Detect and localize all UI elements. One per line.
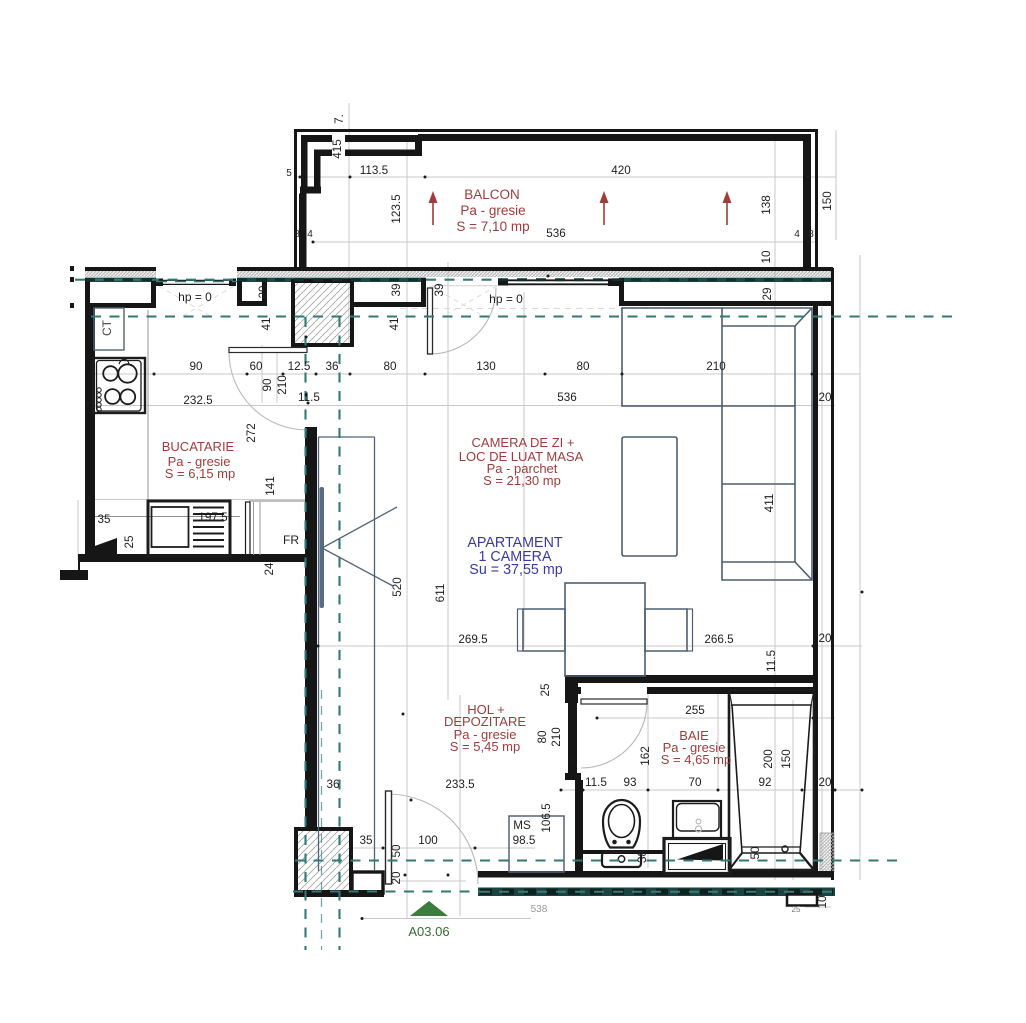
svg-text:123.5: 123.5	[390, 194, 403, 224]
svg-text:MS: MS	[513, 819, 531, 832]
svg-text:611: 611	[434, 584, 447, 603]
svg-text:4: 4	[307, 229, 313, 240]
svg-text:538: 538	[531, 904, 548, 915]
svg-text:36: 36	[326, 778, 339, 791]
svg-text:415: 415	[331, 139, 344, 159]
svg-text:25: 25	[539, 683, 552, 697]
svg-text:520: 520	[391, 577, 404, 597]
svg-text:24: 24	[263, 562, 276, 576]
svg-text:39: 39	[433, 283, 446, 296]
svg-text:100: 100	[418, 834, 438, 847]
svg-text:20: 20	[818, 632, 832, 645]
svg-text:411: 411	[763, 494, 776, 513]
svg-text:150: 150	[780, 749, 793, 769]
svg-text:FR: FR	[283, 533, 299, 547]
svg-text:hp = 0: hp = 0	[489, 292, 523, 306]
svg-text:20: 20	[818, 391, 832, 404]
svg-text:39: 39	[390, 283, 403, 296]
svg-text:29: 29	[761, 287, 774, 300]
svg-text:41: 41	[260, 317, 273, 330]
svg-text:4: 4	[794, 229, 800, 240]
svg-text:210: 210	[706, 360, 726, 373]
svg-text:141: 141	[264, 476, 277, 496]
svg-text:138: 138	[760, 195, 773, 215]
svg-text:269.5: 269.5	[458, 633, 488, 646]
svg-text:197.5: 197.5	[198, 511, 228, 524]
svg-text:7.: 7.	[333, 114, 346, 124]
svg-text:hp = 0: hp = 0	[178, 290, 212, 304]
svg-text:S = 7,10 mp: S = 7,10 mp	[456, 219, 529, 234]
svg-text:90: 90	[261, 378, 274, 392]
svg-text:536: 536	[546, 227, 566, 240]
svg-text:210: 210	[550, 727, 563, 747]
svg-text:29: 29	[257, 285, 270, 298]
svg-text:200: 200	[762, 749, 775, 769]
svg-text:162: 162	[639, 746, 652, 766]
svg-text:80: 80	[576, 360, 590, 373]
svg-text:11.5: 11.5	[765, 650, 778, 672]
svg-text:S = 6,15 mp: S = 6,15 mp	[165, 466, 235, 481]
svg-text:130: 130	[476, 360, 496, 373]
svg-text:A03.06: A03.06	[408, 924, 449, 939]
svg-text:10: 10	[816, 895, 829, 909]
svg-text:8: 8	[294, 229, 300, 240]
svg-text:232.5: 232.5	[183, 394, 213, 407]
svg-text:CT: CT	[100, 319, 114, 336]
svg-text:11.5: 11.5	[298, 391, 320, 404]
svg-text:98.5: 98.5	[513, 834, 536, 847]
svg-text:420: 420	[611, 164, 631, 177]
svg-text:BUCATARIE: BUCATARIE	[162, 439, 235, 454]
svg-text:255: 255	[685, 704, 705, 717]
svg-text:536: 536	[557, 391, 577, 404]
svg-text:Pa - gresie: Pa - gresie	[460, 203, 525, 218]
svg-text:70: 70	[688, 776, 702, 789]
svg-text:92: 92	[758, 776, 771, 789]
svg-text:233.5: 233.5	[445, 778, 475, 791]
svg-text:Su = 37,55 mp: Su = 37,55 mp	[469, 562, 562, 578]
svg-text:266.5: 266.5	[704, 633, 734, 646]
svg-text:113.5: 113.5	[360, 164, 389, 177]
svg-text:25: 25	[123, 535, 136, 549]
svg-text:11.5: 11.5	[585, 776, 607, 789]
svg-text:CAMERA DE ZI +: CAMERA DE ZI +	[472, 435, 575, 450]
svg-text:272: 272	[245, 423, 258, 443]
svg-text:S = 5,45 mp: S = 5,45 mp	[450, 739, 520, 754]
svg-text:10: 10	[760, 250, 773, 264]
svg-text:25: 25	[792, 905, 801, 914]
svg-text:S = 4,65 mp: S = 4,65 mp	[661, 752, 731, 767]
svg-text:41: 41	[388, 317, 401, 330]
svg-text:80: 80	[536, 730, 549, 744]
svg-text:38: 38	[636, 850, 649, 863]
svg-text:36: 36	[325, 360, 338, 373]
svg-text:50: 50	[390, 844, 403, 858]
svg-text:8: 8	[808, 229, 814, 240]
svg-text:106.5: 106.5	[540, 803, 553, 833]
svg-text:90: 90	[189, 360, 203, 373]
svg-text:93: 93	[623, 776, 636, 789]
svg-text:5: 5	[286, 168, 292, 179]
svg-text:80: 80	[383, 360, 397, 373]
svg-text:35: 35	[97, 513, 111, 526]
svg-text:BALCON: BALCON	[464, 187, 520, 202]
svg-text:20: 20	[390, 871, 403, 885]
svg-text:12.5: 12.5	[288, 360, 311, 373]
svg-text:60: 60	[249, 360, 263, 373]
svg-text:210: 210	[276, 375, 289, 395]
svg-text:35: 35	[359, 834, 373, 847]
svg-text:150: 150	[821, 191, 834, 211]
svg-text:20: 20	[818, 776, 832, 789]
svg-text:S = 21,30 mp: S = 21,30 mp	[483, 473, 561, 488]
svg-text:50: 50	[749, 846, 762, 860]
